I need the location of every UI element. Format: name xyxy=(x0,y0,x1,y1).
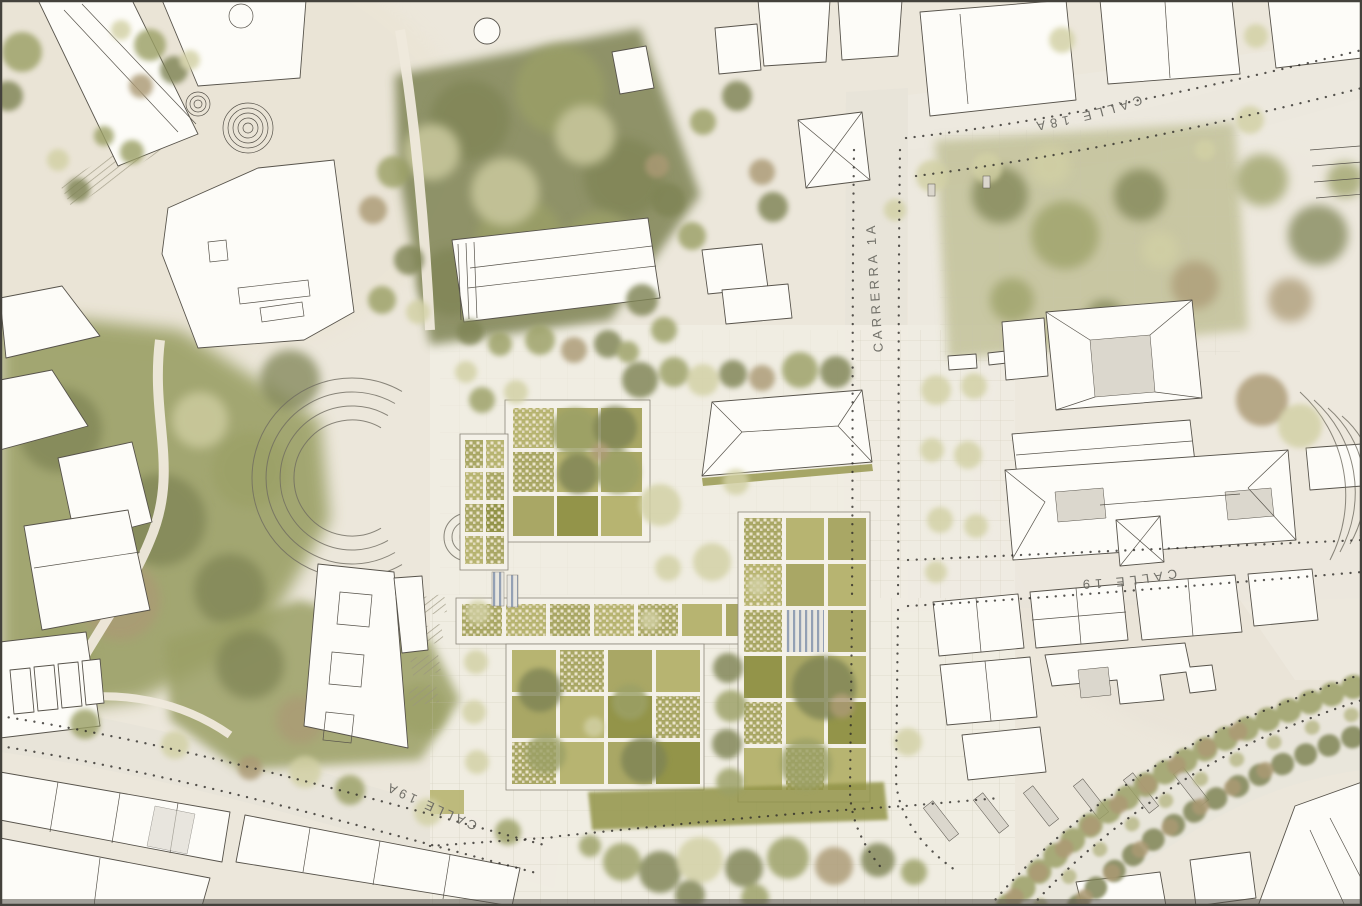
building xyxy=(1002,318,1048,380)
garden-block-west-wing xyxy=(460,434,508,570)
building xyxy=(920,0,1076,116)
building xyxy=(940,657,1037,725)
building xyxy=(702,390,872,476)
building xyxy=(758,0,830,66)
site-plan-map: CALLE 18A CARRERRA 1A CALLE 19 CALLE 19A xyxy=(0,0,1362,906)
building xyxy=(24,510,150,630)
building xyxy=(474,18,500,44)
building xyxy=(722,284,792,324)
building xyxy=(1306,444,1362,490)
site-plan-page: CALLE 18A CARRERRA 1A CALLE 19 CALLE 19A xyxy=(0,0,1362,906)
building xyxy=(612,46,654,94)
building xyxy=(304,564,408,748)
building xyxy=(838,0,902,60)
building xyxy=(1268,0,1362,68)
building xyxy=(948,354,977,370)
building xyxy=(962,727,1046,780)
building xyxy=(1100,0,1240,84)
building xyxy=(1190,852,1256,906)
building xyxy=(715,24,761,74)
